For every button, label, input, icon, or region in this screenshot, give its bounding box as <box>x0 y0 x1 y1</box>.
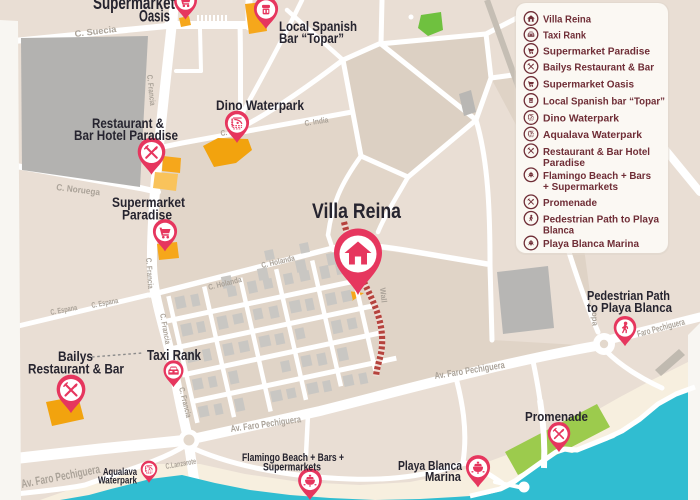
svg-text:Restaurant & Bar: Restaurant & Bar <box>28 361 124 377</box>
svg-text:Bar Hotel Paradise: Bar Hotel Paradise <box>74 127 178 143</box>
svg-text:Wall: Wall <box>378 287 389 303</box>
svg-text:Supermarkets: Supermarkets <box>263 462 321 474</box>
svg-text:Blanca: Blanca <box>543 225 574 237</box>
svg-text:Supermarket Oasis: Supermarket Oasis <box>543 79 634 91</box>
svg-text:Bar “Topar”: Bar “Topar” <box>279 30 344 46</box>
svg-text:Playa Blanca Marina: Playa Blanca Marina <box>543 238 639 250</box>
svg-text:Supermarket Paradise: Supermarket Paradise <box>543 46 650 58</box>
svg-text:Taxi Rank: Taxi Rank <box>543 30 586 42</box>
svg-text:+ Supermarkets: + Supermarkets <box>543 181 618 193</box>
svg-text:Restaurant & Bar Hotel: Restaurant & Bar Hotel <box>543 146 650 158</box>
svg-text:Villa Reina: Villa Reina <box>312 200 401 223</box>
svg-text:Oasis: Oasis <box>139 7 170 26</box>
svg-text:Waterpark: Waterpark <box>98 476 137 487</box>
svg-text:Marina: Marina <box>425 470 462 484</box>
svg-text:Dino Waterpark: Dino Waterpark <box>543 113 619 125</box>
svg-text:Local Spanish bar “Topar”: Local Spanish bar “Topar” <box>543 96 665 108</box>
svg-text:Aqualava Waterpark: Aqualava Waterpark <box>543 129 642 141</box>
svg-text:Taxi Rank: Taxi Rank <box>147 347 202 364</box>
svg-text:to Playa Blanca: to Playa Blanca <box>587 300 673 315</box>
svg-text:Pedestrian Path to Playa: Pedestrian Path to Playa <box>543 213 659 225</box>
svg-text:Paradise: Paradise <box>122 207 172 223</box>
svg-text:Promenade: Promenade <box>543 197 597 209</box>
svg-text:Villa Reina: Villa Reina <box>543 14 591 26</box>
svg-text:Paradise: Paradise <box>543 157 585 169</box>
svg-text:Dino Waterpark: Dino Waterpark <box>216 97 304 113</box>
svg-text:Flamingo Beach + Bars: Flamingo Beach + Bars <box>543 170 651 182</box>
svg-text:Bailys Restaurant & Bar: Bailys Restaurant & Bar <box>543 62 654 74</box>
svg-text:Promenade: Promenade <box>525 409 588 424</box>
